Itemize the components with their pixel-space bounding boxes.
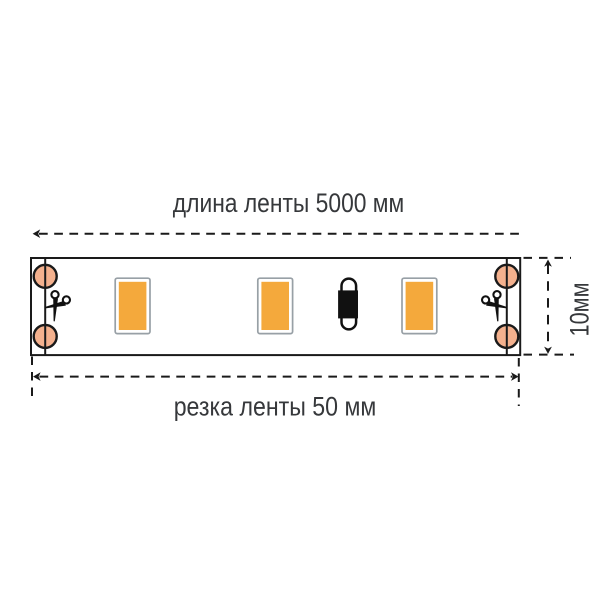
svg-text:10мм: 10мм: [565, 283, 595, 337]
svg-text:резка ленты 50 мм: резка ленты 50 мм: [174, 391, 377, 421]
svg-text:длина ленты 5000 мм: длина ленты 5000 мм: [173, 188, 404, 218]
